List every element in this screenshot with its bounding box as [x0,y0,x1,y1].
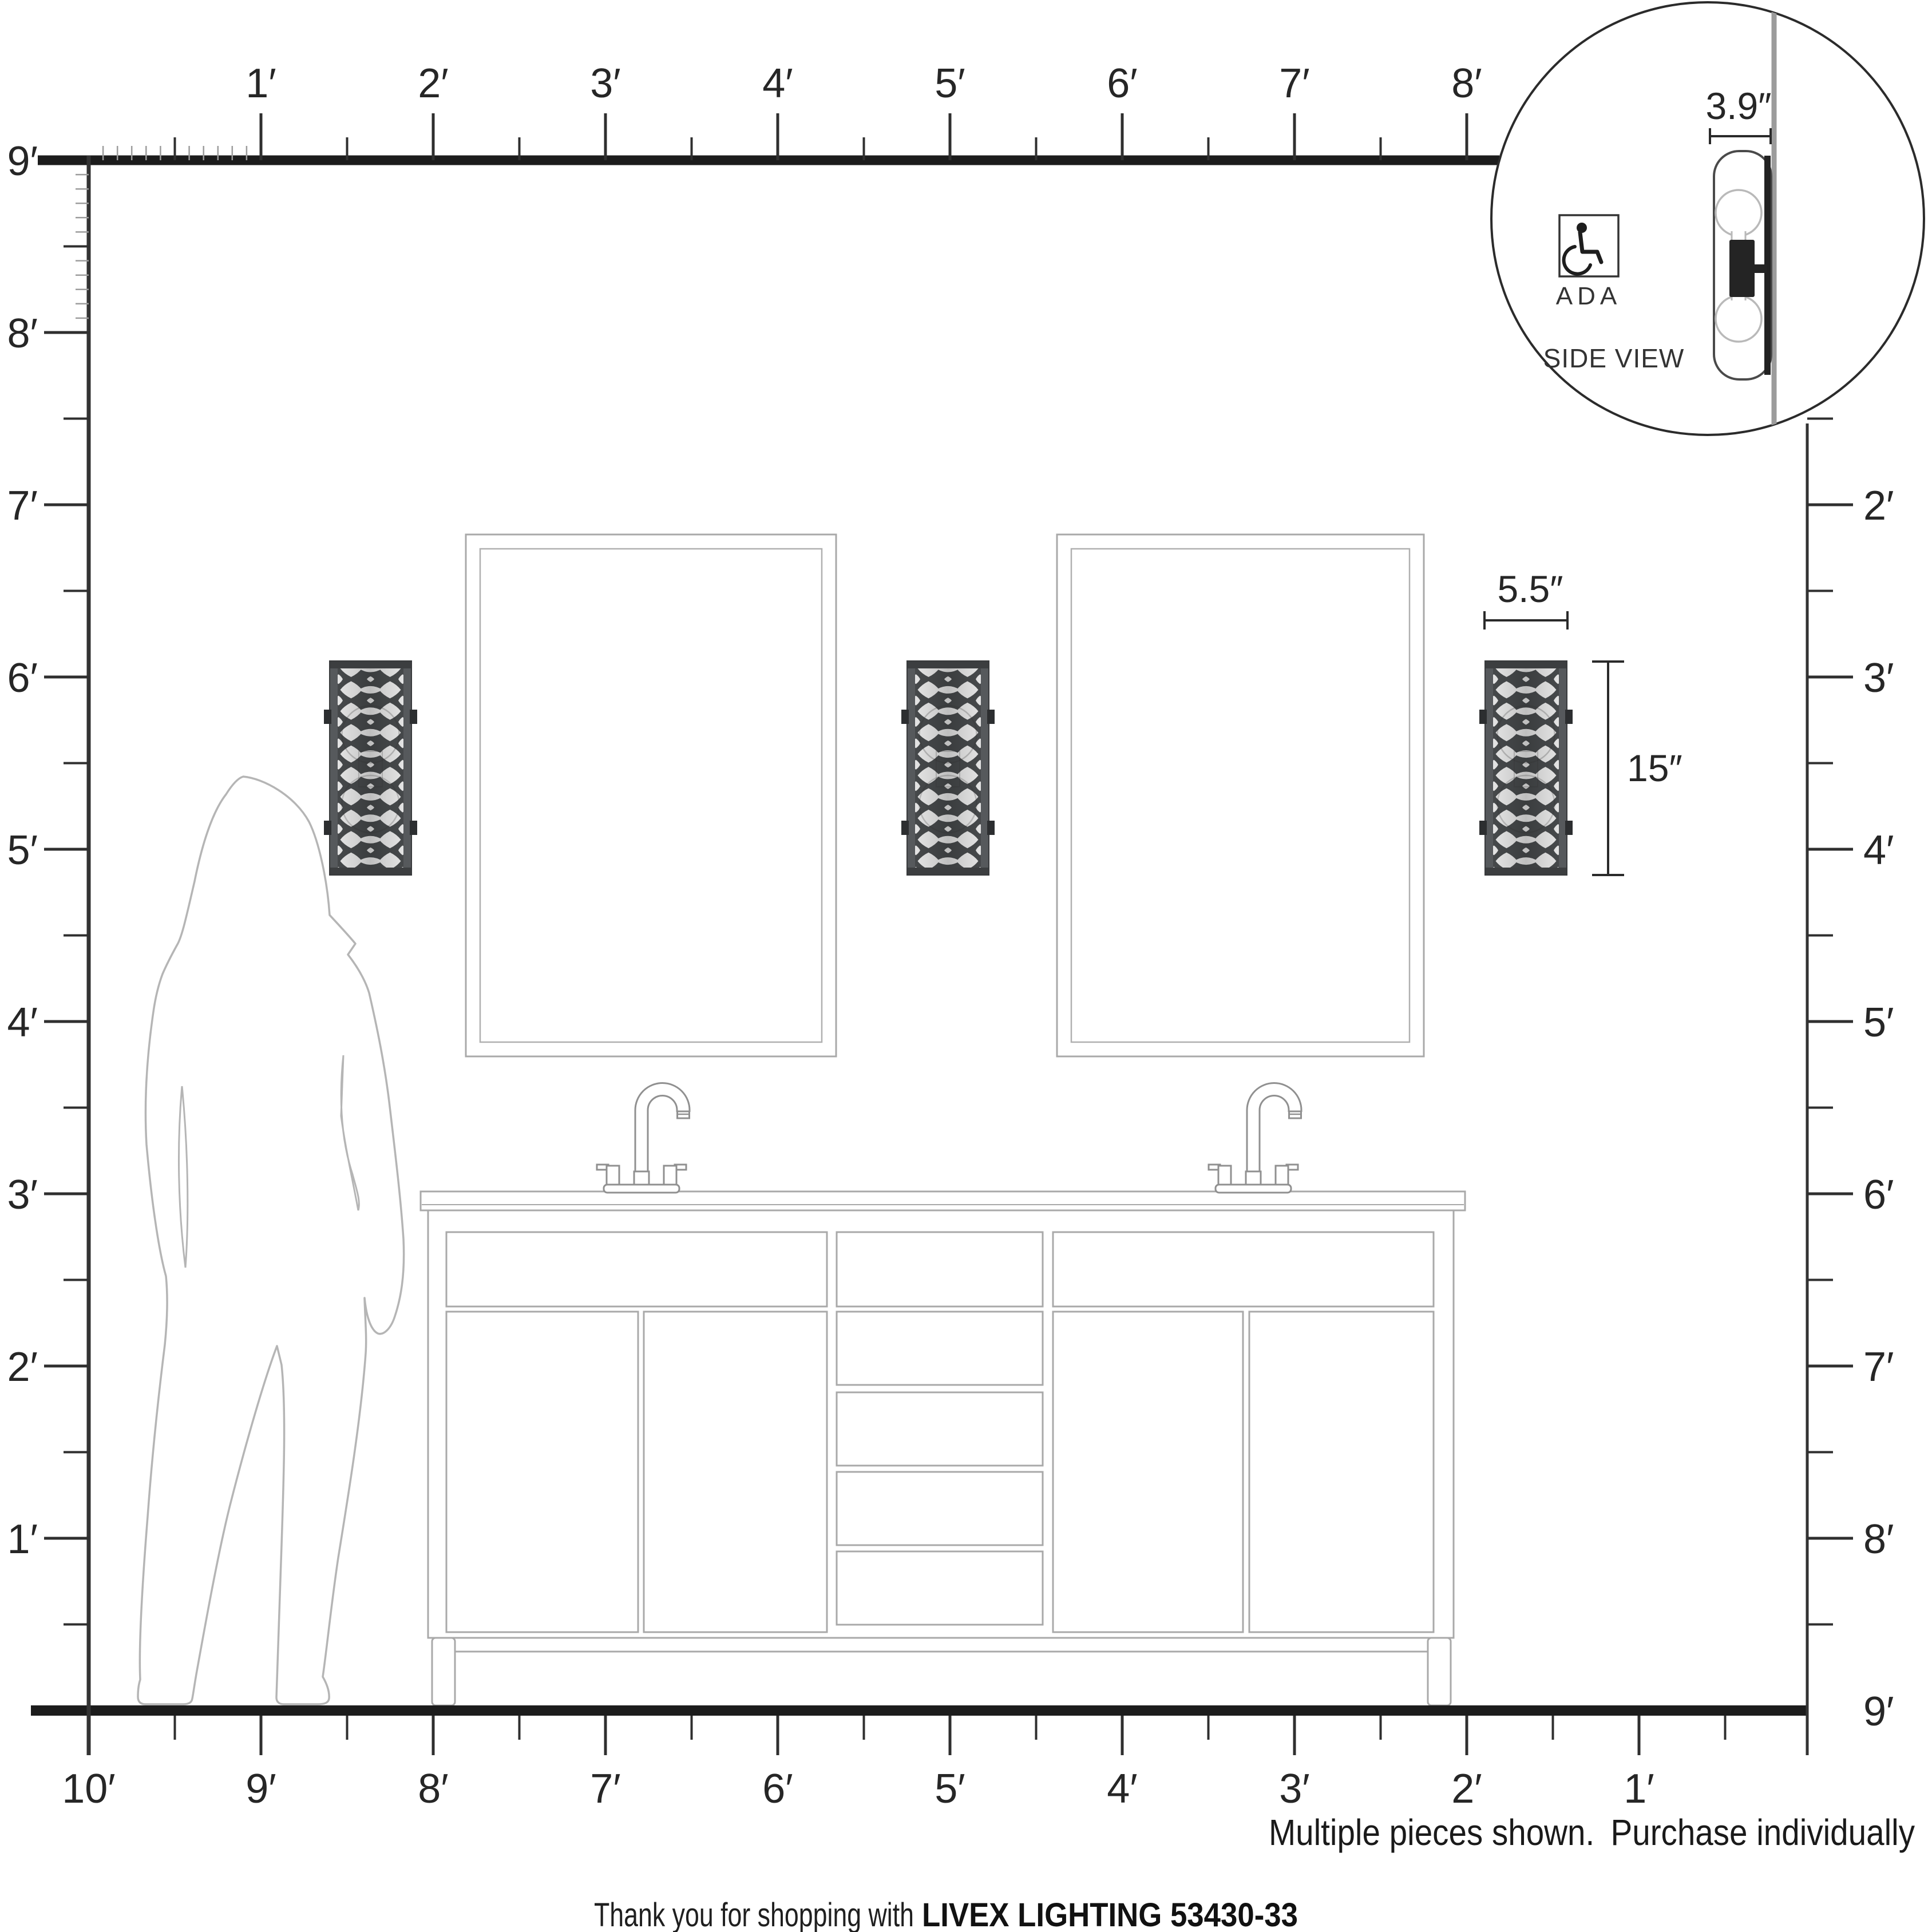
svg-text:7′: 7′ [1863,1344,1894,1390]
svg-text:5′: 5′ [935,1766,965,1812]
svg-text:5.5″: 5.5″ [1497,568,1563,610]
svg-text:9′: 9′ [246,1766,276,1812]
svg-text:10′: 10′ [62,1766,116,1812]
svg-text:2′: 2′ [1451,1766,1482,1812]
svg-text:8′: 8′ [1451,61,1482,106]
svg-text:8′: 8′ [7,311,38,357]
svg-text:6′: 6′ [762,1766,793,1812]
svg-text:SIDE VIEW: SIDE VIEW [1543,343,1685,373]
svg-text:LIVEX LIGHTING 53430-33: LIVEX LIGHTING 53430-33 [922,1897,1298,1932]
svg-text:5′: 5′ [1863,1000,1894,1046]
svg-text:2′: 2′ [1863,483,1894,529]
svg-text:4′: 4′ [1107,1766,1138,1812]
svg-text:9′: 9′ [7,138,38,184]
svg-text:5′: 5′ [935,61,965,106]
svg-text:7′: 7′ [590,1766,621,1812]
svg-text:3.9″: 3.9″ [1705,85,1771,127]
svg-text:7′: 7′ [1279,61,1310,106]
svg-text:8′: 8′ [1863,1517,1894,1562]
svg-text:1′: 1′ [246,61,276,106]
svg-text:3′: 3′ [590,61,621,106]
svg-text:9′: 9′ [1863,1689,1894,1735]
svg-text:6′: 6′ [7,655,38,701]
svg-text:6′: 6′ [1863,1172,1894,1218]
svg-text:1′: 1′ [1624,1766,1654,1812]
svg-text:5′: 5′ [7,828,38,873]
svg-text:4′: 4′ [762,61,793,106]
svg-text:4′: 4′ [1863,828,1894,873]
svg-text:7′: 7′ [7,483,38,529]
svg-text:6′: 6′ [1107,61,1138,106]
svg-text:ADA: ADA [1556,282,1621,310]
svg-text:1′: 1′ [7,1517,38,1562]
svg-text:3′: 3′ [7,1172,38,1218]
svg-text:8′: 8′ [418,1766,449,1812]
svg-text:3′: 3′ [1279,1766,1310,1812]
svg-text:15″: 15″ [1627,747,1682,789]
svg-text:3′: 3′ [1863,655,1894,701]
svg-text:2′: 2′ [7,1344,38,1390]
svg-text:4′: 4′ [7,1000,38,1046]
svg-text:2′: 2′ [418,61,449,106]
svg-text:Multiple pieces shown. Purchas: Multiple pieces shown. Purchase individu… [1269,1812,1915,1853]
svg-text:Thank you for shopping with: Thank you for shopping with [594,1897,914,1932]
